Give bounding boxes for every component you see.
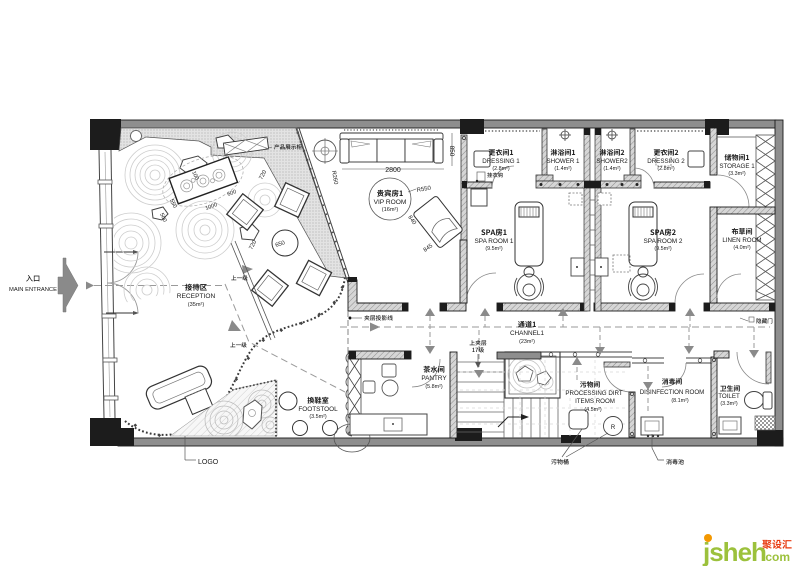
svg-text:R: R [611,425,616,431]
svg-text:(3.5m²): (3.5m²) [309,414,327,420]
svg-text:DISINFECTION ROOM: DISINFECTION ROOM [640,389,705,396]
svg-text:(2.8m²): (2.8m²) [492,166,510,172]
svg-text:CHANNEL1: CHANNEL1 [510,330,545,337]
svg-text:(1.4m²): (1.4m²) [603,166,621,172]
svg-text:DRESSING 1: DRESSING 1 [482,158,520,165]
svg-text:(35m²): (35m²) [188,302,205,308]
svg-text:(23m²): (23m²) [519,339,535,345]
svg-text:2800: 2800 [385,167,401,174]
svg-text:(3.3m²): (3.3m²) [728,171,746,177]
svg-text:850: 850 [448,146,455,157]
svg-text:SPA ROOM 2: SPA ROOM 2 [644,238,683,245]
svg-text:RECEPTION: RECEPTION [177,293,216,300]
svg-text:(2.8m²): (2.8m²) [657,166,675,172]
svg-text:(1.4m²): (1.4m²) [554,166,572,172]
svg-text:(8.1m²): (8.1m²) [671,398,689,404]
svg-text:ITEMS ROOM: ITEMS ROOM [575,398,615,405]
svg-text:FOOTSTOOL: FOOTSTOOL [298,406,338,413]
svg-text:MAIN ENTRANCE: MAIN ENTRANCE [9,287,57,293]
svg-text:SHOWER 1: SHOWER 1 [546,158,580,165]
svg-text:TOILET: TOILET [718,393,740,400]
svg-text:(16m²): (16m²) [382,207,399,213]
svg-text:(4.0m²): (4.0m²) [733,245,751,251]
svg-text:(9.5m²): (9.5m²) [485,246,503,252]
svg-text:SPA ROOM 1: SPA ROOM 1 [475,238,514,245]
svg-text:(5.8m²): (5.8m²) [425,384,443,390]
svg-text:LINEN ROOM: LINEN ROOM [722,237,761,244]
svg-text:PANTRY: PANTRY [421,375,447,382]
svg-text:jsheh: jsheh [702,537,766,566]
svg-text:STORAGE 1: STORAGE 1 [719,163,755,170]
svg-text:(4.5m²): (4.5m²) [584,407,602,413]
svg-text:PROCESSING DIRT: PROCESSING DIRT [565,390,623,397]
svg-text:.com: .com [762,550,790,564]
svg-text:(9.5m²): (9.5m²) [654,246,672,252]
svg-text:VIP ROOM: VIP ROOM [374,199,407,206]
svg-text:DRESSING 2: DRESSING 2 [647,158,685,165]
svg-text:(3.3m²): (3.3m²) [720,401,738,407]
svg-text:SHOWER2: SHOWER2 [596,158,628,165]
svg-text:LOGO: LOGO [198,459,219,466]
